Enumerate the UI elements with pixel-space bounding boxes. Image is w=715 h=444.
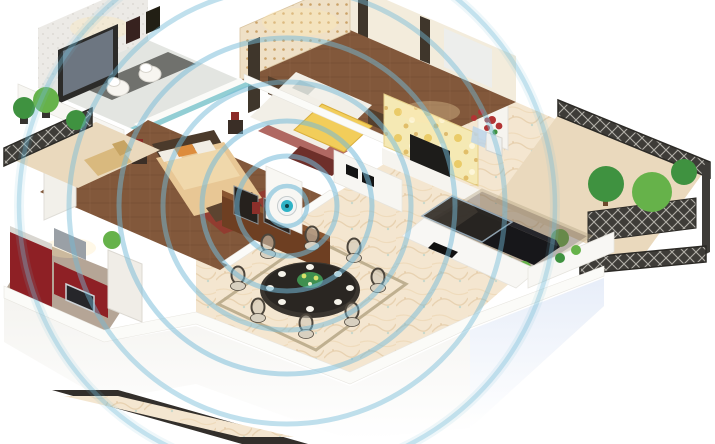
left-balcony (4, 87, 160, 188)
master-bed (156, 142, 262, 216)
shrub (588, 166, 624, 202)
bath-mat (84, 52, 196, 100)
flat-screen-tv (410, 134, 450, 178)
shrub-trunk (603, 192, 608, 206)
dining-chair (231, 267, 246, 291)
kitchen-floor (4, 240, 140, 334)
signal-ring (237, 156, 337, 256)
nightstand (268, 76, 288, 102)
hub-partition (266, 166, 302, 234)
place-settings (266, 264, 354, 312)
ceiling-glow (44, 238, 96, 258)
floorplan-render (0, 0, 715, 444)
toilet (107, 78, 129, 97)
shrub-small (551, 229, 569, 247)
dining-chair (371, 269, 386, 293)
small-plant (502, 256, 514, 268)
marble-walkway (52, 390, 308, 444)
nightstand (368, 108, 388, 132)
cutaway-wall-rim (244, 74, 408, 154)
planter-box (588, 198, 696, 242)
signal-ring (202, 121, 372, 291)
floorplan-canvas (0, 0, 715, 444)
red-cabinet-tall (10, 232, 52, 318)
red-desk-item (252, 202, 260, 214)
master-carpet-floor (40, 120, 328, 270)
wardrobe (44, 136, 76, 220)
signal-ring (69, 0, 505, 424)
background (0, 0, 715, 444)
balcony-floor (14, 122, 160, 188)
tv-wall-group (334, 94, 490, 212)
living-room (402, 190, 614, 288)
bathroom-side-wall (18, 84, 124, 146)
exterior (4, 266, 604, 444)
plant-pot (42, 110, 50, 118)
built-in-oven (66, 284, 94, 312)
cutaway-wall-rim (134, 78, 246, 128)
wall-glow (262, 8, 338, 36)
bathroom-floor (38, 40, 240, 128)
bed (250, 72, 372, 150)
wall-art (126, 16, 140, 44)
chaise-back (112, 140, 132, 156)
smart-hub (278, 197, 297, 216)
red-flower-pot (484, 116, 502, 156)
foot-bench (288, 146, 344, 176)
smart-hub-dot (285, 204, 289, 208)
desk-panel (264, 198, 290, 234)
mirror-frame (58, 24, 118, 104)
small-plant (517, 261, 531, 275)
signal-ring-glow (19, 0, 555, 444)
flower-vase (471, 109, 490, 148)
dining-chair (299, 315, 314, 339)
signal-ring (119, 38, 455, 374)
bidet (139, 64, 161, 83)
master-bedroom (40, 112, 338, 270)
lattice-railing (4, 108, 92, 166)
foot-bench (206, 192, 262, 222)
dining-chair (261, 235, 276, 259)
dining-chairs (231, 227, 386, 339)
counter-top (10, 226, 52, 252)
speaker-box (346, 164, 358, 179)
bedroom (240, 0, 516, 176)
front-wall-face (4, 278, 604, 440)
planter-plant (571, 245, 581, 255)
wall-art (146, 6, 160, 34)
signal-ring (19, 0, 555, 444)
speaker-box (362, 172, 374, 187)
sideboard-top (222, 190, 330, 244)
chaise-lounge (84, 146, 132, 176)
curtain (420, 16, 430, 64)
bathroom-back-wall (38, 0, 148, 88)
flower-centerpiece (297, 272, 323, 288)
tv-stand (382, 148, 480, 206)
sunken-lounge-pit (426, 190, 590, 272)
black-sofa (452, 212, 560, 265)
desk-panel (234, 186, 258, 224)
glass-coffee-table (422, 196, 512, 242)
front-wall-face-blue (470, 278, 604, 428)
teal-floor-strip (130, 80, 252, 133)
plant-pot (20, 116, 28, 124)
pillow (308, 87, 336, 104)
dining-table (260, 262, 360, 318)
hall (196, 102, 650, 374)
floor-inlay-border (218, 238, 406, 350)
signal-ring (267, 186, 307, 226)
walkway-tiles (64, 396, 294, 437)
step-stool (22, 304, 46, 325)
bedroom-red-rug (258, 120, 348, 162)
lattice-railing-back (558, 100, 710, 178)
refrigerator (108, 250, 142, 322)
potted-plant (103, 231, 121, 249)
pillow (192, 140, 216, 154)
potted-plant (66, 110, 86, 130)
vanity-mirror (63, 29, 113, 96)
potted-plant (33, 87, 59, 113)
lattice-railing-front (580, 246, 706, 274)
bathroom (18, 0, 252, 146)
bedroom-carpet-floor (240, 30, 516, 152)
range-hood (54, 228, 86, 260)
dining-chair (251, 299, 266, 323)
corner-pillar (478, 62, 508, 150)
curtain (248, 37, 260, 113)
half-wall (528, 232, 614, 288)
half-wall (402, 218, 538, 288)
headboard (152, 130, 222, 158)
planter-plant (555, 253, 565, 263)
kitchen (4, 226, 142, 334)
pillow (158, 148, 182, 162)
wall-glow (70, 16, 130, 40)
pillow (292, 80, 318, 96)
hall-marble-floor (196, 102, 650, 374)
dining-chair (305, 227, 320, 251)
smart-hub-lens (281, 200, 293, 212)
wood-sideboard (222, 196, 330, 272)
signal-ring (163, 82, 411, 330)
balcony-floor (494, 104, 708, 266)
lattice-railing-right (702, 162, 710, 256)
dining-area (218, 166, 406, 350)
front-wall-top (4, 266, 604, 384)
master-red-rug (200, 186, 300, 234)
balcony-window (444, 28, 492, 88)
signal-rings (19, 0, 555, 444)
yellow-throw (294, 104, 372, 152)
shrub (632, 172, 672, 212)
cutaway-wall-rim (222, 190, 338, 266)
red-cabinet-run (54, 262, 108, 318)
wall-glow (400, 101, 460, 123)
sofa-backrest (472, 204, 560, 247)
orange-pillow (174, 144, 197, 157)
shrub (671, 159, 697, 185)
walkway-border (52, 390, 308, 444)
bedroom-back-wall (350, 0, 516, 102)
speaker-partition (334, 150, 402, 212)
roof-beam (436, 44, 482, 74)
curtain (358, 0, 368, 40)
dining-chair (345, 303, 360, 327)
right-balcony (436, 44, 710, 274)
floral-tv-wall (384, 94, 478, 186)
patterned-wallpaper-wall (240, 0, 350, 80)
bed-fold (166, 148, 240, 190)
nightstand-lamp (228, 112, 243, 134)
serving-tray (428, 242, 458, 258)
dining-chair (347, 239, 362, 263)
nightstand-lamp (132, 139, 147, 164)
potted-plant (13, 97, 35, 119)
